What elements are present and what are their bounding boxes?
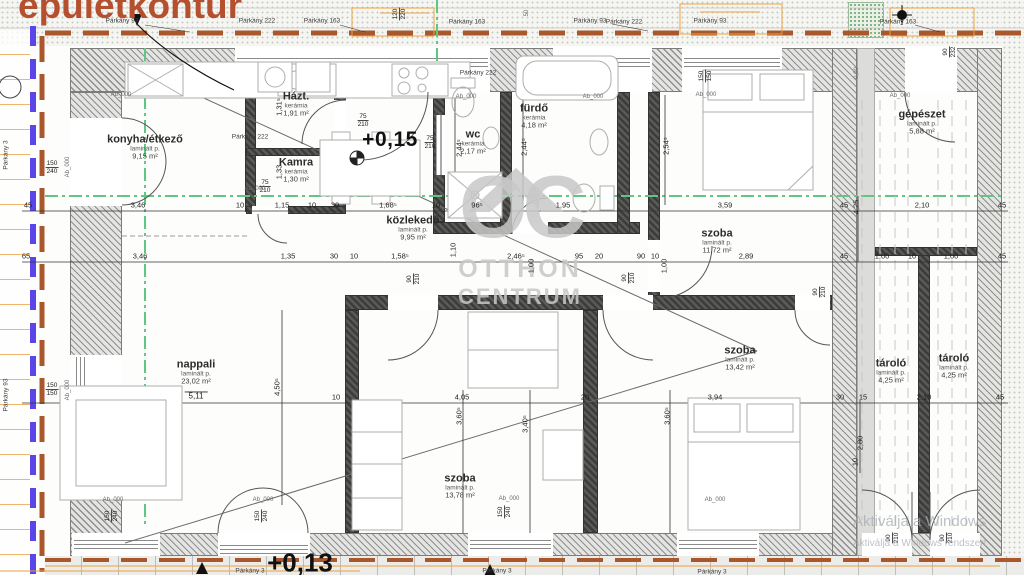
room-name: gépészet — [898, 108, 945, 120]
dimension-label: 10 — [350, 252, 358, 261]
dimension-fraction-part: 240 — [46, 169, 59, 176]
room-name: tároló — [939, 352, 970, 364]
dimension-label: 0,00 — [854, 67, 860, 79]
parkany-label: Párkány 222 — [606, 19, 643, 26]
parkany-label: Párkány 3 — [697, 569, 726, 575]
parkany-label: Párkány 163 — [304, 18, 341, 25]
room-label-trol: tárolólaminált p.4,25 m² — [939, 352, 970, 379]
dimension-label: 30 — [331, 201, 339, 210]
room-name: fürdő — [520, 102, 548, 114]
dimension-label: 150240 — [46, 160, 59, 176]
dimension-label: 45 — [840, 252, 848, 261]
dimension-label: Ab_000 — [890, 93, 911, 99]
parkany-label: Párkány 163 — [449, 19, 486, 26]
dimension-label: 1,35 — [281, 252, 296, 261]
dimension-label: 1,58⁵ — [391, 252, 409, 261]
dimension-fraction-part: 210 — [415, 274, 422, 285]
dimension-fraction-part: 90 — [406, 274, 414, 285]
dimension-fraction-part: 90 — [812, 287, 820, 298]
room-area: 4,18 m² — [520, 121, 548, 129]
dimension-label: 4,05 — [455, 393, 470, 402]
dimension-label: 2,44⁵ — [520, 138, 529, 156]
dimension-label: 96⁵ — [471, 201, 482, 210]
dimension-label: Ab_000 — [583, 94, 604, 100]
room-name: szoba — [724, 344, 755, 356]
dimension-fraction-part: 210 — [630, 273, 637, 284]
parkany-label: Párkány 3 — [3, 140, 10, 169]
room-area: 13,42 m² — [724, 363, 755, 371]
dimension-label: 3,60⁵ — [663, 407, 672, 425]
dimension-label: 2,44⁵ — [455, 139, 464, 157]
dimension-label: 3,40⁵ — [521, 415, 530, 433]
dimension-label: 45 — [24, 201, 32, 210]
room-name: wc — [460, 128, 485, 140]
dimension-fraction-part: 75 — [358, 113, 369, 121]
dimension-label: 10 — [651, 252, 659, 261]
level-marker — [350, 151, 364, 165]
dimension-label: 90210 — [812, 287, 828, 298]
dimension-label: Ab_000 — [111, 92, 132, 98]
parkany-label: Párkány 222 — [232, 134, 269, 141]
room-label-kamra: Kamrakerámia1,30 m² — [279, 156, 313, 183]
dimension-label: 150150 — [698, 70, 714, 83]
dimension-label: Ab_000 — [705, 497, 726, 503]
page-title: épületkontúr — [18, 0, 242, 27]
dimension-label: 3,94 — [708, 393, 723, 402]
activation-line2: Aktiválja a Windows rendszert — [853, 538, 1024, 549]
dimension-label: 30 — [836, 393, 844, 402]
dimension-label: 2,10 — [915, 201, 930, 210]
room-area: 9,15 m² — [107, 152, 183, 160]
room-area: 1,91 m² — [283, 109, 309, 117]
room-area: 23,02 m² — [177, 378, 216, 386]
dimension-fraction-part: 240 — [506, 506, 513, 519]
room-label-frd: fürdőkerámia4,18 m² — [520, 102, 548, 129]
dimension-label: 1,00 — [660, 259, 669, 274]
room-name: Kamra — [279, 156, 313, 168]
dimension-label: 1,33 — [275, 165, 284, 180]
dimension-fraction-part: 120 — [392, 8, 400, 21]
dimension-fraction-part: 75 — [425, 135, 436, 143]
dimension-label: 75210 — [358, 113, 369, 129]
dimension-label: 2,54⁵ — [662, 137, 671, 155]
dimension-label: 20 — [595, 252, 603, 261]
room-area: 5,88 m² — [898, 127, 945, 135]
parkany-label: Párkány 222 — [239, 18, 276, 25]
room-label-szoba: szobalaminált p.13,78 m² — [444, 472, 475, 499]
dimension-label: 15 — [859, 393, 867, 402]
dimension-label: 1,15 — [275, 201, 290, 210]
dimension-label: 1,31⁵ — [275, 98, 284, 116]
room-name: közlekedő — [386, 214, 439, 226]
dimension-label: 3,46 — [131, 201, 146, 210]
room-name: nappali — [177, 358, 216, 370]
watermark-line2: CENTRUM — [455, 284, 585, 310]
parkany-label: Párkány 222 — [460, 70, 497, 77]
windows-activation-watermark: Aktiválja a Windows Aktiválja a Windows … — [853, 513, 1024, 549]
parkany-label: Párkány 93 — [694, 18, 727, 25]
dimension-label: 2,80 — [856, 436, 865, 451]
level-annotation: +0,13 — [267, 548, 333, 575]
dimension-label: Ab_000 — [103, 497, 124, 503]
dimension-label: 4,25 — [852, 200, 861, 215]
dimension-fraction-part: 220 — [401, 8, 408, 21]
dimension-fraction-part: 150 — [254, 510, 262, 523]
dimension-label: 2,10 — [917, 393, 932, 402]
room-name: szoba — [701, 227, 732, 239]
dimension-fraction-part: 240 — [113, 510, 120, 523]
room-name: konyha/étkező — [107, 133, 183, 145]
parkany-label: Párkány 3 — [482, 568, 511, 575]
parkany-label: Párkány 163 — [880, 19, 917, 26]
room-name: tároló — [876, 357, 907, 369]
room-area: 9,95 m² — [386, 233, 439, 241]
dimension-fraction-part: 90 — [942, 47, 950, 58]
dimension-label: 90210 — [621, 273, 637, 284]
parkany-label: Párkány 93 — [574, 18, 607, 25]
dimension-label: 2,89 — [739, 252, 754, 261]
dimension-label: 3,59 — [718, 201, 733, 210]
dimension-label: 45 — [998, 252, 1006, 261]
dimension-label: 1,00 — [875, 252, 890, 261]
dimension-label: 3,46 — [133, 252, 148, 261]
dimension-label: Ab_000 — [696, 92, 717, 98]
dimension-label: 20 — [581, 393, 589, 402]
room-area: 1,30 m² — [279, 175, 313, 183]
dimension-fraction-part: 240 — [263, 510, 270, 523]
floorplan-canvas: épületkontúr konyha/étkezőlaminált p.9,1… — [0, 0, 1024, 575]
room-label-trol: tárolólaminált p.4,25 m² — [876, 357, 907, 384]
dimension-label: 10 — [332, 393, 340, 402]
dimension-label: 95 — [575, 252, 583, 261]
dimension-fraction-part: 210 — [821, 287, 828, 298]
dimension-fraction-part: 150 — [46, 391, 59, 398]
dimension-label: 10 — [236, 201, 244, 210]
dimension-fraction-part: 210 — [425, 144, 436, 151]
dimension-label: 1,95 — [556, 201, 571, 210]
dimension-label: 45 — [996, 393, 1004, 402]
dimension-label: 1,10 — [449, 243, 458, 258]
room-label-konyhatkez: konyha/étkezőlaminált p.9,15 m² — [107, 133, 183, 160]
dimension-fraction-part: 150 — [46, 160, 59, 168]
room-label-kzleked: közlekedőlaminált p.9,95 m² — [386, 214, 439, 241]
dimension-label: 3,60⁵ — [455, 407, 464, 425]
dimension-label: Ab_000 — [65, 380, 71, 401]
dimension-label: Ab_000 — [245, 186, 266, 192]
dimension-label: 150240 — [104, 510, 120, 523]
dimension-label: 45 — [840, 201, 848, 210]
dimension-fraction-part: 150 — [46, 382, 59, 390]
dimension-label: 75210 — [425, 135, 436, 151]
dimension-fraction-part: 150 — [497, 506, 505, 519]
dimension-label: 150240 — [497, 506, 513, 519]
dimension-label: 1,00 — [527, 259, 536, 274]
dimension-label: 150150 — [46, 382, 59, 398]
dimension-label: 1,68⁵ — [379, 201, 397, 210]
room-area: 2,17 m² — [460, 147, 485, 155]
dimension-label: 90232 — [942, 47, 958, 58]
dimension-label: 10 — [908, 252, 916, 261]
dimension-label: 65 — [22, 252, 30, 261]
activation-line1: Aktiválja a Windows — [853, 513, 1024, 530]
dimension-label: Ab_000 — [253, 497, 274, 503]
dimension-label: 90210 — [406, 274, 422, 285]
dimension-fraction-part: 232 — [951, 47, 958, 58]
dimension-label: 30 — [330, 252, 338, 261]
dimension-label: Ab_000 — [456, 94, 477, 100]
dimension-fraction-part: 150 — [104, 510, 112, 523]
dimension-label: Ab_000 — [499, 496, 520, 502]
room-area: 4,25 m² — [876, 376, 907, 384]
dimension-label: 45 — [998, 201, 1006, 210]
dimension-fraction-part: 90 — [621, 273, 629, 284]
dimension-fraction-part: 150 — [707, 70, 714, 83]
dimension-fraction-part: 210 — [358, 122, 369, 129]
dimension-label: 10 — [851, 458, 860, 466]
dimension-label: 120220 — [392, 8, 408, 21]
dimension-label: 10 — [432, 201, 440, 210]
room-extra: 5,11 — [185, 392, 208, 402]
dimension-label: 50 — [524, 10, 530, 17]
room-name: szoba — [444, 472, 475, 484]
room-label-nappali: nappalilaminált p.23,02 m²5,11 — [177, 358, 216, 403]
otthon-centrum-watermark: OC OTTHON CENTRUM — [455, 165, 585, 310]
dimension-label: 90 — [637, 252, 645, 261]
room-area: 11,72 m² — [701, 246, 732, 254]
parkany-label: Párkány 3 — [235, 568, 264, 575]
dimension-label: 2,46⁵ — [507, 252, 525, 261]
dimension-label: 1,00 — [944, 252, 959, 261]
dimension-label: 10 — [308, 201, 316, 210]
room-area: 4,25 m² — [939, 371, 970, 379]
room-label-szoba: szobalaminált p.11,72 m² — [701, 227, 732, 254]
room-area: 13,78 m² — [444, 491, 475, 499]
dimension-label: 150240 — [254, 510, 270, 523]
room-label-gpszet: gépészetlaminált p.5,88 m² — [898, 108, 945, 135]
dimension-label: Ab_000 — [65, 157, 71, 178]
room-name: Házt. — [283, 90, 309, 102]
room-label-wc: wckerámia2,17 m² — [460, 128, 485, 155]
room-label-szoba: szobalaminált p.13,42 m² — [724, 344, 755, 371]
dimension-label: 4,50⁵ — [273, 378, 282, 396]
parkany-label: Párkány 93 — [3, 379, 10, 412]
level-annotation: +0,15 — [362, 128, 418, 152]
room-label-hzt: Házt.kerámia1,91 m² — [283, 90, 309, 117]
dimension-fraction-part: 150 — [698, 70, 706, 83]
